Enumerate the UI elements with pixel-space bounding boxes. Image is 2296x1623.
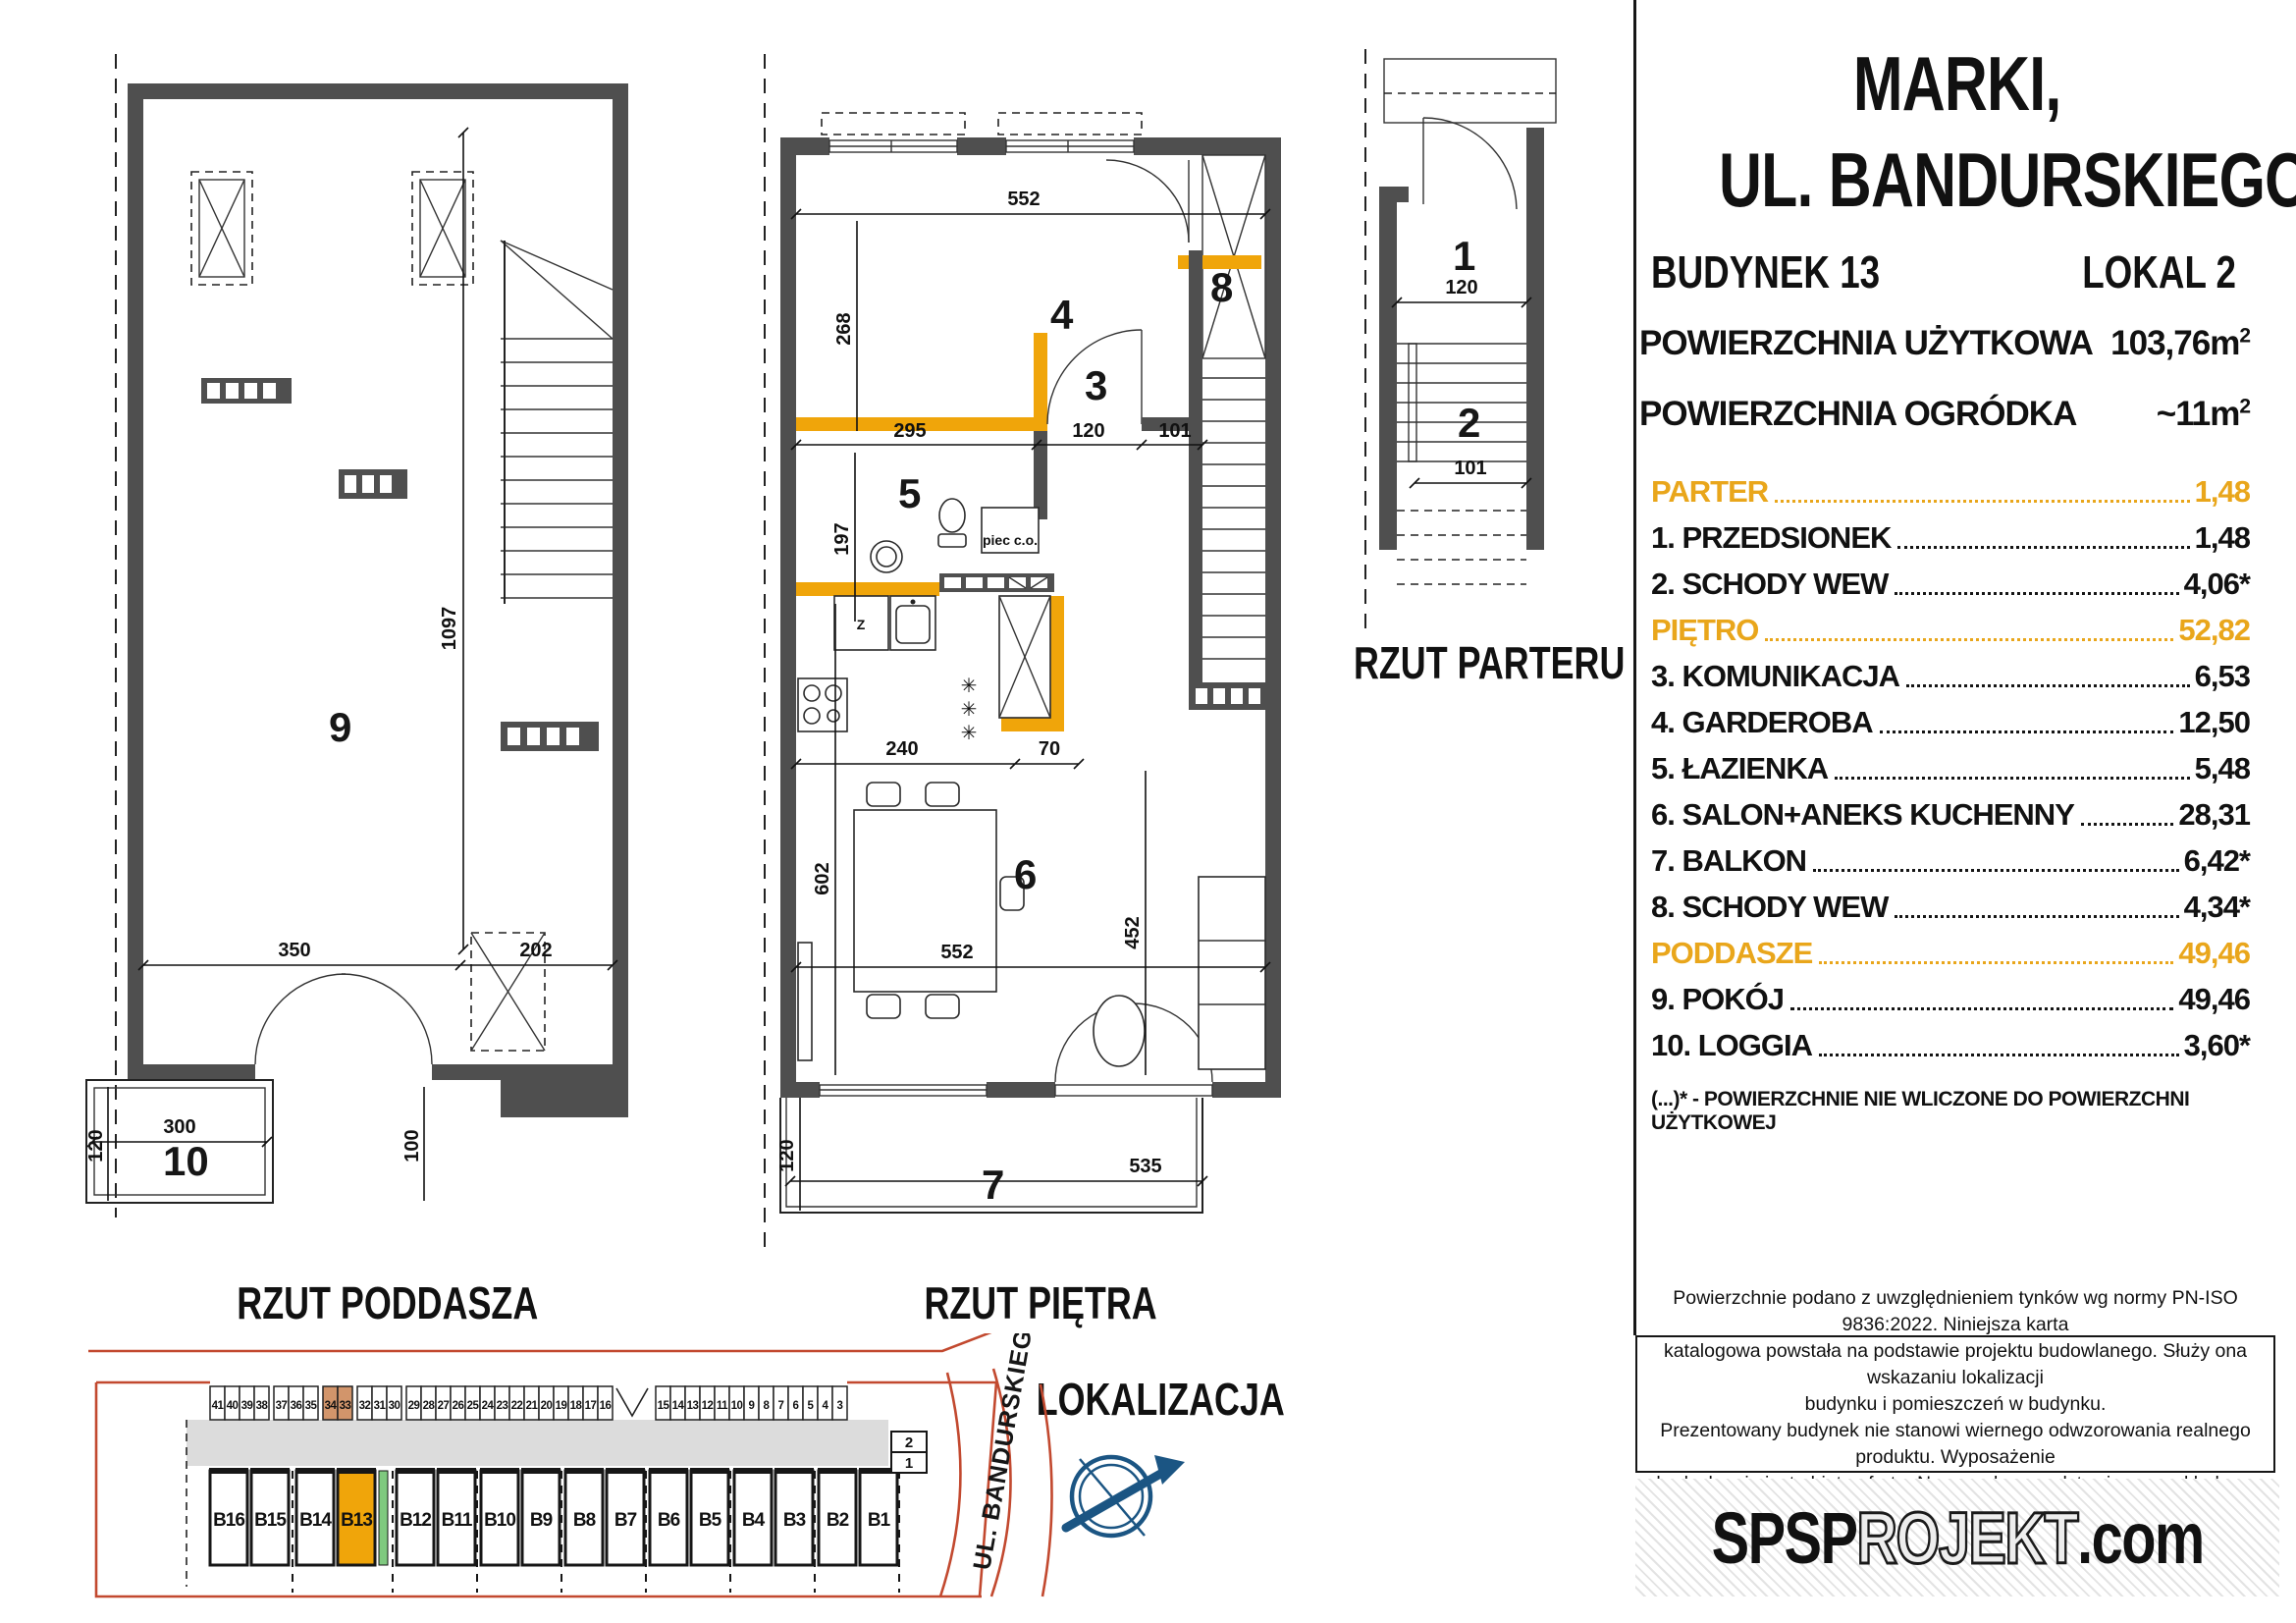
tv-board [798,943,812,1060]
building-label: B12 [400,1510,431,1531]
parking-number: 12 [702,1400,714,1412]
highlight-wall [1034,333,1047,431]
parking-number: 20 [541,1400,553,1412]
garden-area-label: POWIERZCHNIA OGRÓDKA [1639,395,2076,434]
dim-label: 101 [1158,420,1191,442]
dim-label: 1097 [439,607,460,651]
room-number-6: 6 [1014,851,1037,897]
company-logo: SPSPROJEKT.com [1642,1496,2272,1580]
side-unit-label: 2 [905,1434,913,1451]
parking-number: 17 [585,1400,597,1412]
section-row: PIĘTRO52,82 [1651,602,2250,648]
dim-label: 350 [278,940,310,961]
room-row: 7. BALKON6,42* [1651,833,2250,879]
plan-title-pietro: RZUT PIĘTRA [775,1276,1306,1329]
parking-number: 23 [497,1400,508,1412]
room-area-list: PARTER1,481. PRZEDSIONEK1,482. SCHODY WE… [1651,463,2250,1063]
parking-number: 16 [600,1400,612,1412]
stairs [1202,378,1265,659]
dim-label: 101 [1454,458,1486,479]
parking-number: 7 [778,1400,784,1412]
room-row: 9. POKÓJ49,46 [1651,971,2250,1017]
parking-number: 27 [438,1400,450,1412]
room-number-5: 5 [898,470,921,516]
parking-number: 24 [482,1400,495,1412]
room-number-4: 4 [1050,292,1074,338]
building-label: B13 [341,1510,372,1531]
appliance-z: Z [834,596,888,650]
dim-label: 452 [1122,916,1144,948]
building-label: B2 [827,1510,849,1531]
tall-cabinet [999,596,1050,718]
building-label: B1 [868,1510,891,1531]
parking-number: 40 [227,1400,239,1412]
parking-number: 39 [241,1400,253,1412]
room-row: 10. LOGGIA3,60* [1651,1017,2250,1063]
parking-number: 18 [570,1400,583,1412]
dim-label: 202 [519,940,552,961]
parking-number: 29 [408,1400,420,1412]
highlight-wall [1001,718,1064,731]
building-label: B11 [442,1510,473,1531]
entry-door [1423,118,1517,209]
parking-number: 6 [793,1400,799,1412]
dim-label: 120 [1072,420,1104,442]
dim-label: 70 [1039,738,1060,760]
building-label: B14 [299,1510,332,1531]
parking-number: 31 [374,1400,387,1412]
catalog-sheet: 1097 350 202 300 120 100 9 10 RZUT PODDA… [0,0,2296,1623]
parking-number: 28 [423,1400,436,1412]
svg-text:✳: ✳ [961,676,978,697]
section-row: PARTER1,48 [1651,463,2250,510]
parking-number: 30 [389,1400,400,1412]
building-label: BUDYNEK 13 [1651,245,1880,298]
dim-label: 197 [831,522,853,555]
toilet [938,499,966,547]
railing-grille [201,378,292,404]
skylight [191,172,252,285]
floor-plan-pietro: piec c.o. Z ✳✳✳ [761,54,1291,1247]
room-number-3: 3 [1085,362,1107,408]
location-map: 4140393837363534333231302928272625242322… [59,1333,1070,1618]
stairs [501,241,613,604]
parking-number: 35 [305,1400,318,1412]
stove [798,678,847,731]
usable-area-value: 103,76m2 [2110,324,2250,363]
building-label: B8 [573,1510,596,1531]
floor-plan-poddasze: 1097 350 202 300 120 100 9 10 [79,54,677,1247]
title-city: MARKI, [1635,39,2279,129]
parking-number: 38 [256,1400,269,1412]
dim-label: 100 [401,1129,423,1162]
room-row: 8. SCHODY WEW4,34* [1651,879,2250,925]
sink [871,541,902,572]
logo-strip: SPSPROJEKT.com [1635,1479,2279,1596]
usable-area-row: POWIERZCHNIA UŻYTKOWA 103,76m2 [1639,324,2250,363]
window [998,113,1142,152]
dim-label: 120 [776,1139,798,1171]
railing-grille [339,469,407,499]
dim-label: 602 [812,862,833,894]
unit-label: LOKAL 2 [2082,245,2236,298]
highlight-wall [1050,596,1064,731]
building-label: B15 [254,1510,287,1531]
parking-number: 14 [672,1400,685,1412]
parking-number: 26 [453,1400,464,1412]
garden-area-row: POWIERZCHNIA OGRÓDKA ~11m2 [1639,395,2250,434]
svg-text:✳: ✳ [961,723,978,744]
parking-number: 11 [717,1400,728,1412]
window [820,1085,987,1096]
room-number-7: 7 [982,1162,1004,1208]
parking-row: 4140393837363534333231302928272625242322… [210,1386,847,1420]
building-label: B6 [658,1510,680,1531]
parking-number: 9 [749,1400,755,1412]
title-street: UL. BANDURSKIEGO [1635,135,2279,225]
building-label: B7 [614,1510,637,1531]
room-row: 5. ŁAZIENKA5,48 [1651,740,2250,786]
side-units: 2 1 [891,1432,927,1473]
door [1106,160,1189,243]
dim-label: 535 [1129,1156,1161,1177]
dim-label: 120 [85,1129,107,1162]
room-number-8: 8 [1210,264,1233,310]
dim-label: 268 [833,312,855,345]
building-label: B16 [213,1510,244,1531]
compass-icon [1060,1445,1188,1553]
room-row: 1. PRZEDSIONEK1,48 [1651,510,2250,556]
driveway [616,1388,648,1416]
parking-number: 37 [276,1400,288,1412]
room-row: 3. KOMUNIKACJA6,53 [1651,648,2250,694]
dim-label: 552 [1007,189,1040,210]
dim-label: 552 [940,942,973,963]
section-row: PODDASZE49,46 [1651,925,2250,971]
parking-number: 22 [511,1400,523,1412]
garden-area-value: ~11m2 [2157,395,2250,434]
parking-number: 32 [359,1400,371,1412]
room-number-10: 10 [163,1138,209,1184]
room-number-9: 9 [329,704,351,750]
window [822,113,965,152]
parking-number: 41 [212,1400,225,1412]
parking-number: 25 [467,1400,480,1412]
buildings-row: B16B15B14B13B12B11B10B9B8B7B6B5B4B3B2B1 [209,1468,898,1565]
dining-table [854,783,1024,1018]
street-label: UL. BANDURSKIEGO [968,1333,1041,1572]
plan-title-poddasze: RZUT PODDASZA [113,1276,663,1329]
disclaimer-text: Powierzchnie podano z uwzględnieniem tyn… [1635,1335,2275,1473]
kitchen-sink [890,596,935,650]
room-number-1: 1 [1453,233,1475,279]
room-number-2: 2 [1458,400,1480,446]
building-label: B9 [530,1510,553,1531]
plan-title-parter: RZUT PARTERU [1315,636,1649,689]
room-row: 6. SALON+ANEKS KUCHENNY28,31 [1651,786,2250,833]
parking-number: 36 [291,1400,302,1412]
railing-grille [1189,682,1281,710]
room-row: 4. GARDEROBA12,50 [1651,694,2250,740]
dim-label: 120 [1445,277,1477,298]
dim-label: 295 [893,420,926,442]
parking-number: 13 [687,1400,699,1412]
double-door [255,974,432,1064]
side-unit-label: 1 [905,1455,913,1472]
usable-area-label: POWIERZCHNIA UŻYTKOWA [1639,324,2093,363]
boiler: piec c.o. [982,508,1039,553]
room-row: 2. SCHODY WEW4,06* [1651,556,2250,602]
footnote: (...)* - POWIERZCHNIE NIE WLICZONE DO PO… [1651,1088,2250,1135]
building-label: B4 [742,1510,766,1531]
railing-grille [501,722,599,751]
parking-number: 21 [526,1400,539,1412]
access-road [187,1420,888,1466]
appliance-label: Z [857,617,866,632]
parking-number: 33 [340,1400,351,1412]
building-label: B5 [699,1510,722,1531]
green-strip [379,1471,388,1565]
parking-number: 10 [731,1400,743,1412]
boiler-label: piec c.o. [983,532,1038,548]
building-label: B10 [484,1510,515,1531]
building-label: B3 [783,1510,806,1531]
dim-label: 300 [163,1116,195,1138]
highlight-wall [796,582,939,596]
building-unit-banner: BUDYNEK 13 LOKAL 2 [1635,239,2250,304]
parking-number: 3 [837,1400,843,1412]
sofa [1094,877,1265,1069]
parking-number: 19 [556,1400,567,1412]
svg-text:✳: ✳ [961,699,978,721]
floor-plan-parter: 120 101 1 2 [1360,49,1585,638]
pantry-symbols: ✳✳✳ [961,676,978,744]
parking-number: 34 [325,1400,338,1412]
parking-number: 15 [658,1400,670,1412]
kitchen-cabinets [939,573,1054,592]
info-panel: MARKI, UL. BANDURSKIEGO BUDYNEK 13 LOKAL… [1635,0,2279,1623]
dim-label: 240 [885,738,918,760]
